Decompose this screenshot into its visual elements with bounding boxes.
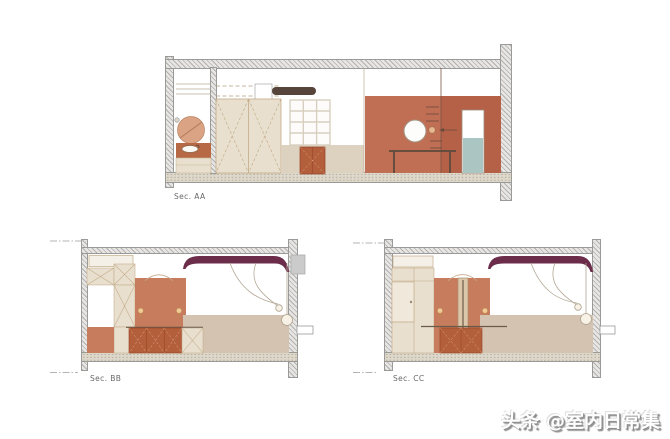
bed-canopy	[183, 256, 289, 272]
ac-unit	[291, 255, 305, 274]
top-shelf-box	[393, 256, 433, 267]
round-mirror	[178, 117, 205, 144]
bed-canopy	[488, 256, 593, 272]
section-cc-drawing	[353, 238, 623, 379]
bathroom-shelves	[176, 84, 211, 94]
wall-niche-box	[297, 326, 313, 334]
section-label-aa: Sec. AA	[174, 192, 206, 201]
vanity-counter	[176, 143, 211, 158]
handrail-bar	[272, 87, 316, 95]
bathroom-cabinet	[176, 158, 211, 173]
vanity-cabinet	[129, 328, 182, 353]
door-lower-panel	[463, 138, 483, 173]
wall-niche-box	[600, 326, 615, 334]
wainscot-strip	[480, 315, 593, 353]
porthole-window	[404, 120, 426, 142]
niche-shelf	[458, 278, 468, 330]
wall-hook-dot	[175, 118, 180, 123]
side-cabinet	[182, 328, 203, 353]
section-aa-drawing	[166, 45, 511, 205]
door	[462, 110, 484, 173]
shelf-grid	[290, 100, 330, 145]
pendant-light-small	[575, 304, 582, 311]
section-label-bb: Sec. BB	[90, 374, 121, 383]
centerline-marks	[50, 241, 82, 373]
watermark: 头条 @室内日常集	[501, 406, 660, 433]
section-label-cc: Sec. CC	[393, 374, 425, 383]
terracotta-side-panel	[87, 327, 114, 353]
loft-box	[255, 84, 272, 100]
wall-hook	[429, 127, 435, 133]
pendant-light-small	[276, 305, 283, 312]
wash-basin	[182, 146, 198, 153]
storage-cabinet	[300, 147, 325, 174]
pendant-light-large	[581, 314, 592, 325]
centerline-marks	[353, 243, 385, 373]
wardrobe	[216, 99, 281, 173]
section-drawings-page: Sec. AA	[0, 0, 670, 439]
pendant-light-large	[282, 315, 293, 326]
vanity-cabinet	[440, 328, 482, 353]
section-bb-drawing	[50, 238, 316, 379]
left-cabinets	[392, 268, 434, 353]
